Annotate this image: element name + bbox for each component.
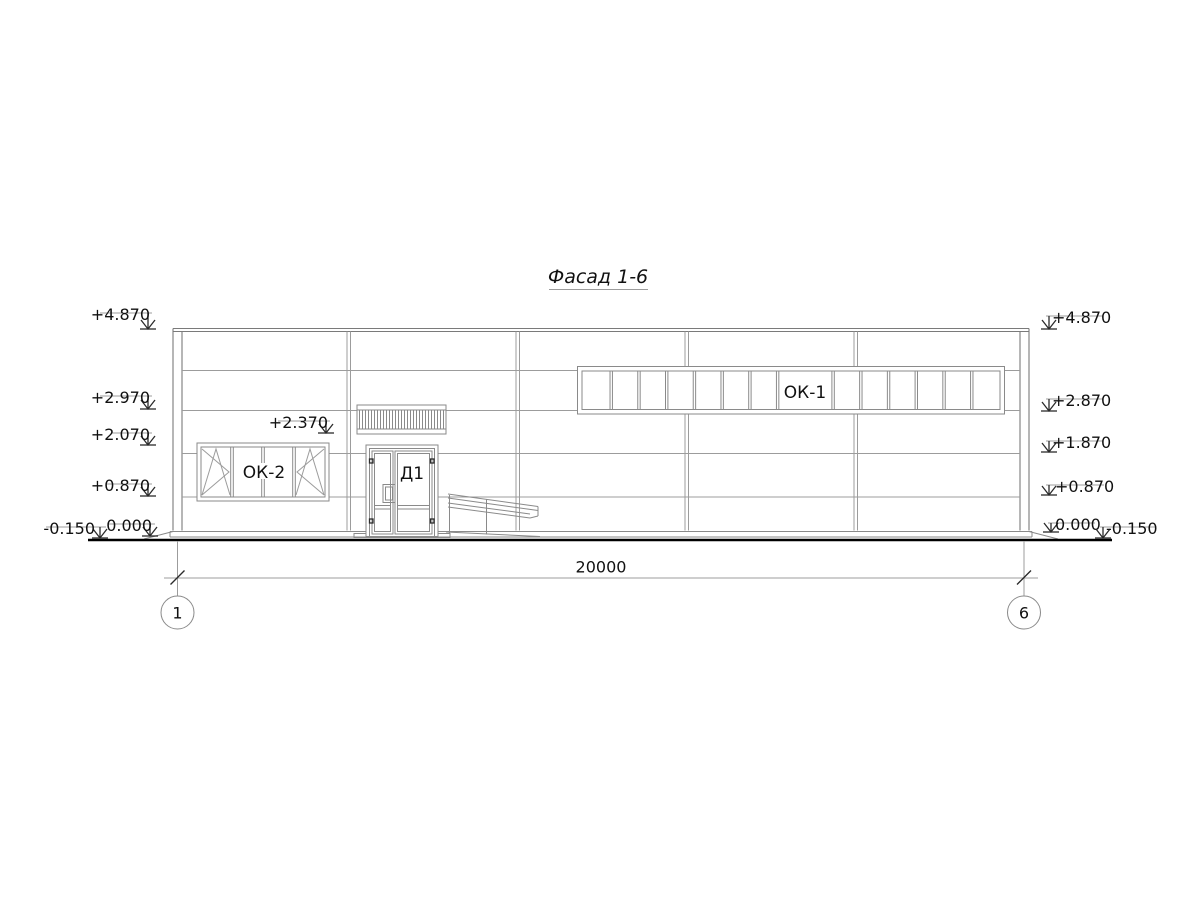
drawing-title: Фасад 1-6 — [548, 266, 648, 290]
window-ok2-label: ОК-2 — [243, 463, 285, 483]
elevation-mark-right-0870-value: +0.870 — [1055, 477, 1114, 496]
elevation-mark-left-m0150: -0.150 — [43, 519, 108, 538]
elevation-mark-right-0000: 0.000 — [1043, 515, 1101, 534]
elevation-mark-right-2870: +2.870 — [1041, 391, 1111, 411]
elevation-mark-left-2070-value: +2.070 — [91, 425, 150, 444]
elevation-mark-right-4870: +4.870 — [1041, 308, 1111, 329]
drawing-sheet: ОК-1 ОК-2 — [0, 0, 1200, 900]
door-d1: Д1 — [366, 445, 438, 537]
facade-elevation-drawing: ОК-1 ОК-2 — [0, 0, 1200, 900]
door-d1-label: Д1 — [400, 464, 424, 484]
window-ok1-label: ОК-1 — [784, 383, 826, 403]
access-ramp — [446, 494, 540, 537]
elevation-mark-left-2070: +2.070 — [91, 425, 156, 445]
elevation-mark-louver-2370: +2.370 — [269, 413, 334, 433]
grid-axis-6-label: 6 — [1019, 604, 1029, 623]
elevation-mark-left-0000: 0.000 — [106, 516, 158, 536]
grid-bubble-1: 1 — [161, 596, 194, 629]
dimension-total-text: 20000 — [576, 558, 627, 577]
elevation-mark-left-2970-value: +2.970 — [91, 388, 150, 407]
window-ok2: ОК-2 — [197, 443, 329, 501]
elevation-mark-left-0870-value: +0.870 — [91, 476, 150, 495]
elevation-mark-right-0870: +0.870 — [1041, 477, 1114, 496]
elevation-mark-left-0870: +0.870 — [91, 476, 156, 496]
plinth — [170, 532, 1032, 538]
elevation-mark-right-0000-value: 0.000 — [1055, 515, 1101, 534]
grid-axis-1-label: 1 — [172, 604, 182, 623]
elevation-mark-right-1870-value: +1.870 — [1052, 433, 1111, 452]
elevation-markers: +4.870+2.970+2.070+0.8700.000-0.150+2.37… — [43, 305, 1157, 538]
window-ok1: ОК-1 — [578, 367, 1005, 415]
elevation-mark-left-m0150-value: -0.150 — [43, 519, 95, 538]
elevation-mark-left-2970: +2.970 — [91, 388, 156, 409]
elevation-mark-louver-2370-value: +2.370 — [269, 413, 328, 432]
elevation-mark-right-4870-value: +4.870 — [1052, 308, 1111, 327]
grid-bubble-6: 6 — [1008, 596, 1041, 629]
elevation-mark-right-2870-value: +2.870 — [1052, 391, 1111, 410]
dimension-group: 20000 1 6 — [161, 541, 1041, 629]
elevation-mark-right-1870: +1.870 — [1041, 433, 1111, 452]
elevation-mark-left-0000-value: 0.000 — [106, 516, 152, 535]
elevation-mark-right-m0150-value: -0.150 — [1106, 519, 1158, 538]
elevation-mark-left-4870-value: +4.870 — [91, 305, 150, 324]
elevation-mark-left-4870: +4.870 — [91, 305, 156, 329]
drawing-title-text: Фасад 1-6 — [548, 266, 648, 288]
elevation-mark-right-m0150: -0.150 — [1095, 519, 1158, 538]
blind-area-aprons — [144, 532, 1058, 540]
louver-grille — [357, 405, 446, 434]
